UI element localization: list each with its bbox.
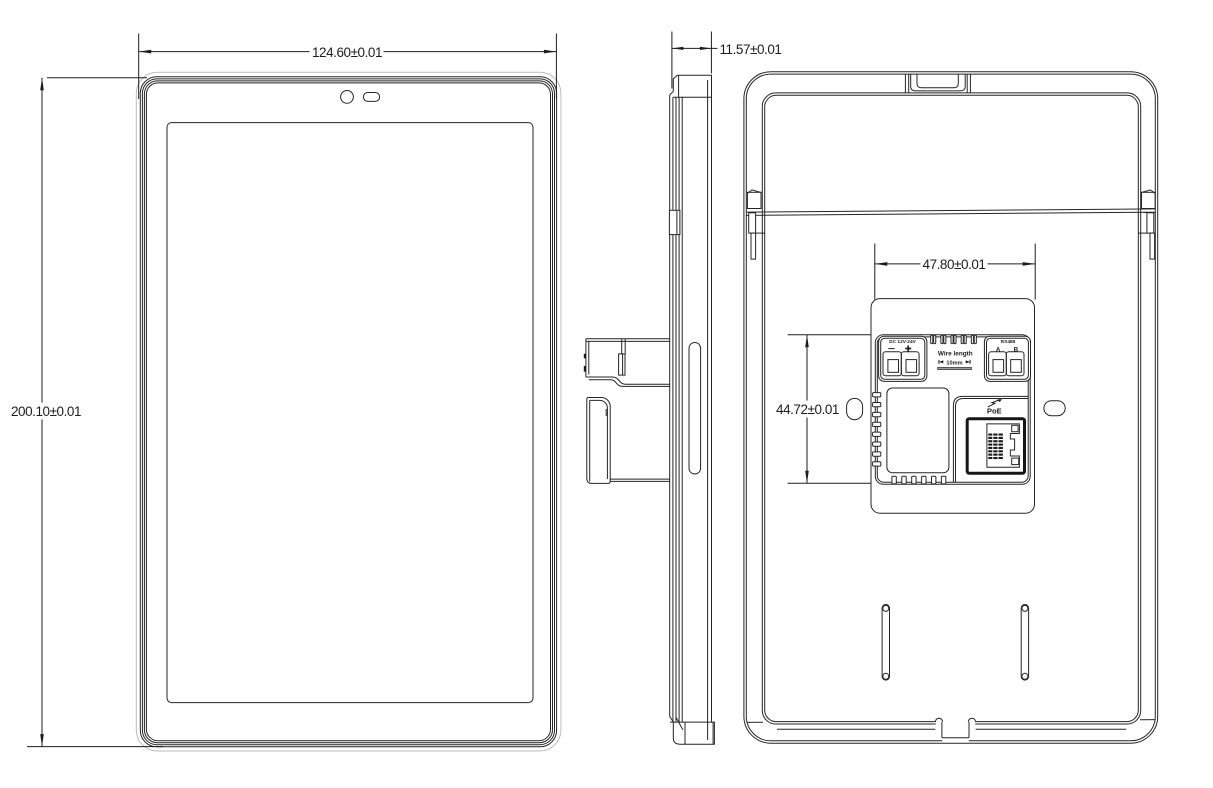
svg-text:47.80±0.01: 47.80±0.01 bbox=[923, 257, 986, 272]
svg-text:200.10±0.01: 200.10±0.01 bbox=[11, 404, 81, 419]
svg-text:44.72±0.01: 44.72±0.01 bbox=[776, 402, 839, 417]
svg-text:124.60±0.01: 124.60±0.01 bbox=[312, 45, 382, 60]
svg-text:11.57±0.01: 11.57±0.01 bbox=[720, 42, 782, 57]
svg-text:A: A bbox=[996, 347, 1001, 354]
svg-text:DC 12V-24V: DC 12V-24V bbox=[889, 339, 916, 345]
svg-text:B: B bbox=[1014, 347, 1019, 354]
svg-text:PoE: PoE bbox=[987, 406, 1002, 415]
svg-text:Wire length: Wire length bbox=[938, 350, 973, 357]
svg-text:RS485: RS485 bbox=[1001, 339, 1016, 345]
svg-text:10mm: 10mm bbox=[946, 360, 962, 366]
